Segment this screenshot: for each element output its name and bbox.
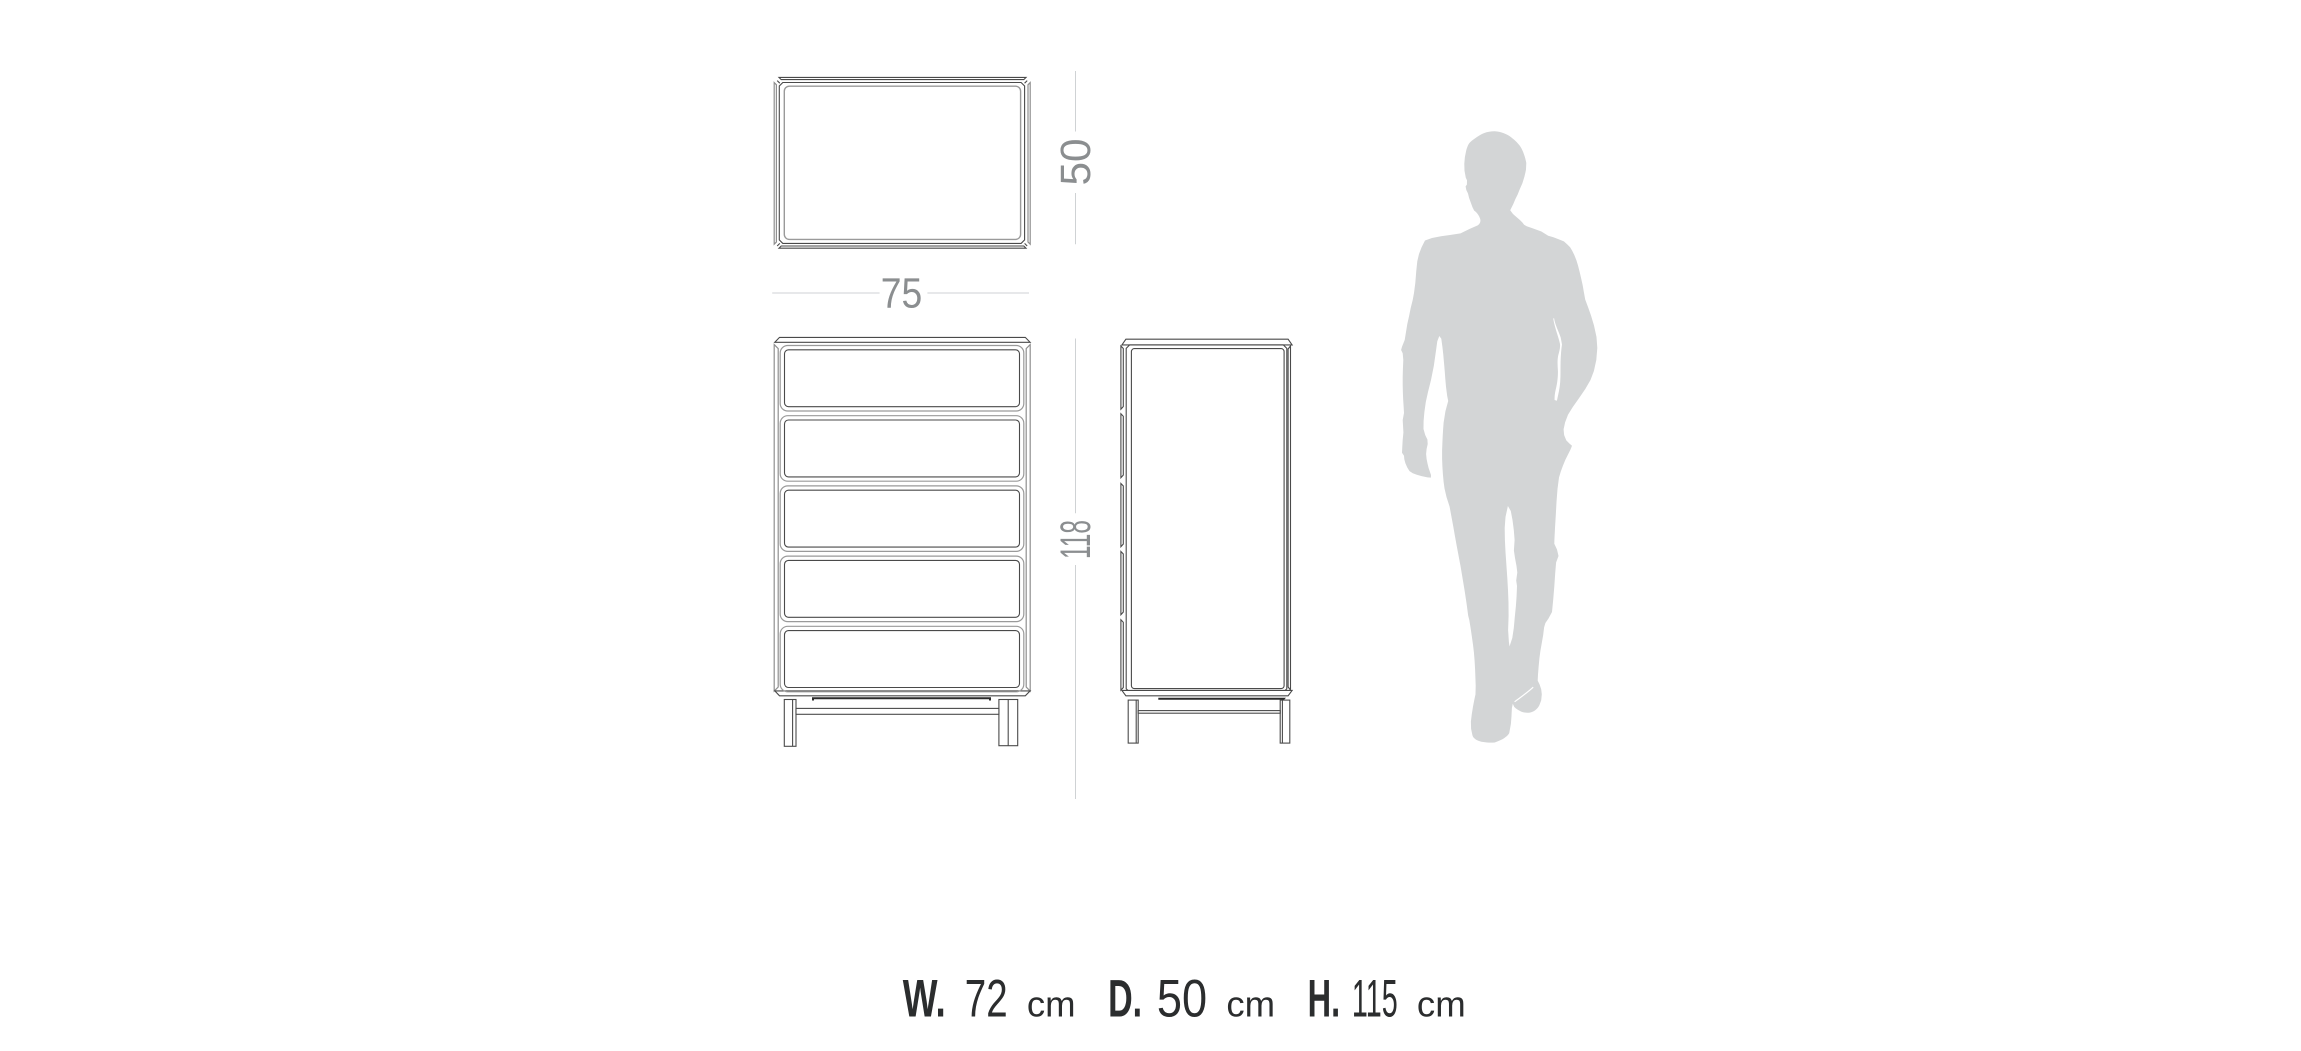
svg-text:115: 115 [1352, 970, 1398, 1029]
svg-text:cm: cm [1226, 984, 1275, 1025]
svg-text:W.: W. [903, 970, 946, 1029]
svg-text:50: 50 [1053, 139, 1100, 186]
svg-text:cm: cm [1417, 984, 1466, 1025]
svg-text:118: 118 [1053, 520, 1100, 559]
svg-text:cm: cm [1027, 984, 1076, 1025]
svg-text:H.: H. [1308, 970, 1341, 1029]
svg-text:50: 50 [1157, 970, 1207, 1029]
svg-text:D.: D. [1108, 970, 1142, 1029]
svg-text:75: 75 [881, 271, 923, 318]
svg-text:72: 72 [965, 970, 1008, 1029]
